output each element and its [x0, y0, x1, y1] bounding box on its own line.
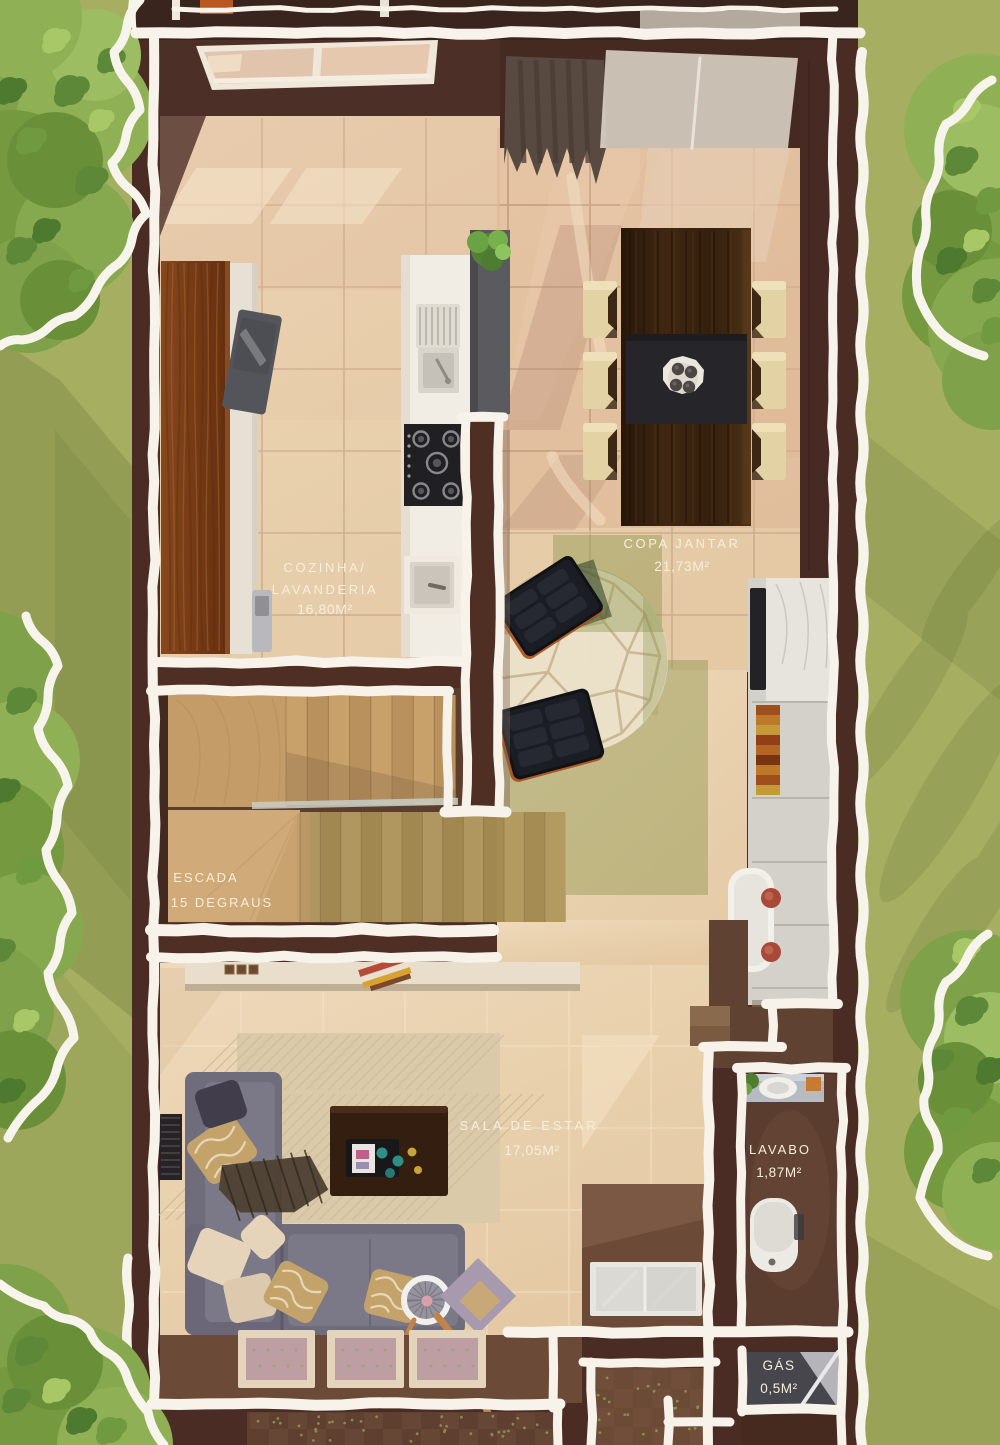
- svg-text:0,5M²: 0,5M²: [760, 1381, 798, 1396]
- svg-text:ESCADA: ESCADA: [173, 870, 238, 885]
- svg-text:15 DEGRAUS: 15 DEGRAUS: [171, 895, 273, 910]
- svg-text:LAVANDERIA: LAVANDERIA: [272, 582, 378, 597]
- svg-text:COPA JANTAR: COPA JANTAR: [624, 536, 741, 551]
- svg-text:17,05M²: 17,05M²: [504, 1142, 560, 1158]
- svg-text:1,87M²: 1,87M²: [756, 1165, 802, 1180]
- svg-text:SALA DE ESTAR: SALA DE ESTAR: [459, 1118, 598, 1133]
- svg-text:LAVABO: LAVABO: [749, 1142, 811, 1157]
- svg-text:16,80M²: 16,80M²: [297, 601, 353, 617]
- svg-text:COZINHA/: COZINHA/: [284, 560, 367, 575]
- svg-text:21,73M²: 21,73M²: [654, 558, 710, 574]
- svg-text:GÁS: GÁS: [762, 1358, 795, 1373]
